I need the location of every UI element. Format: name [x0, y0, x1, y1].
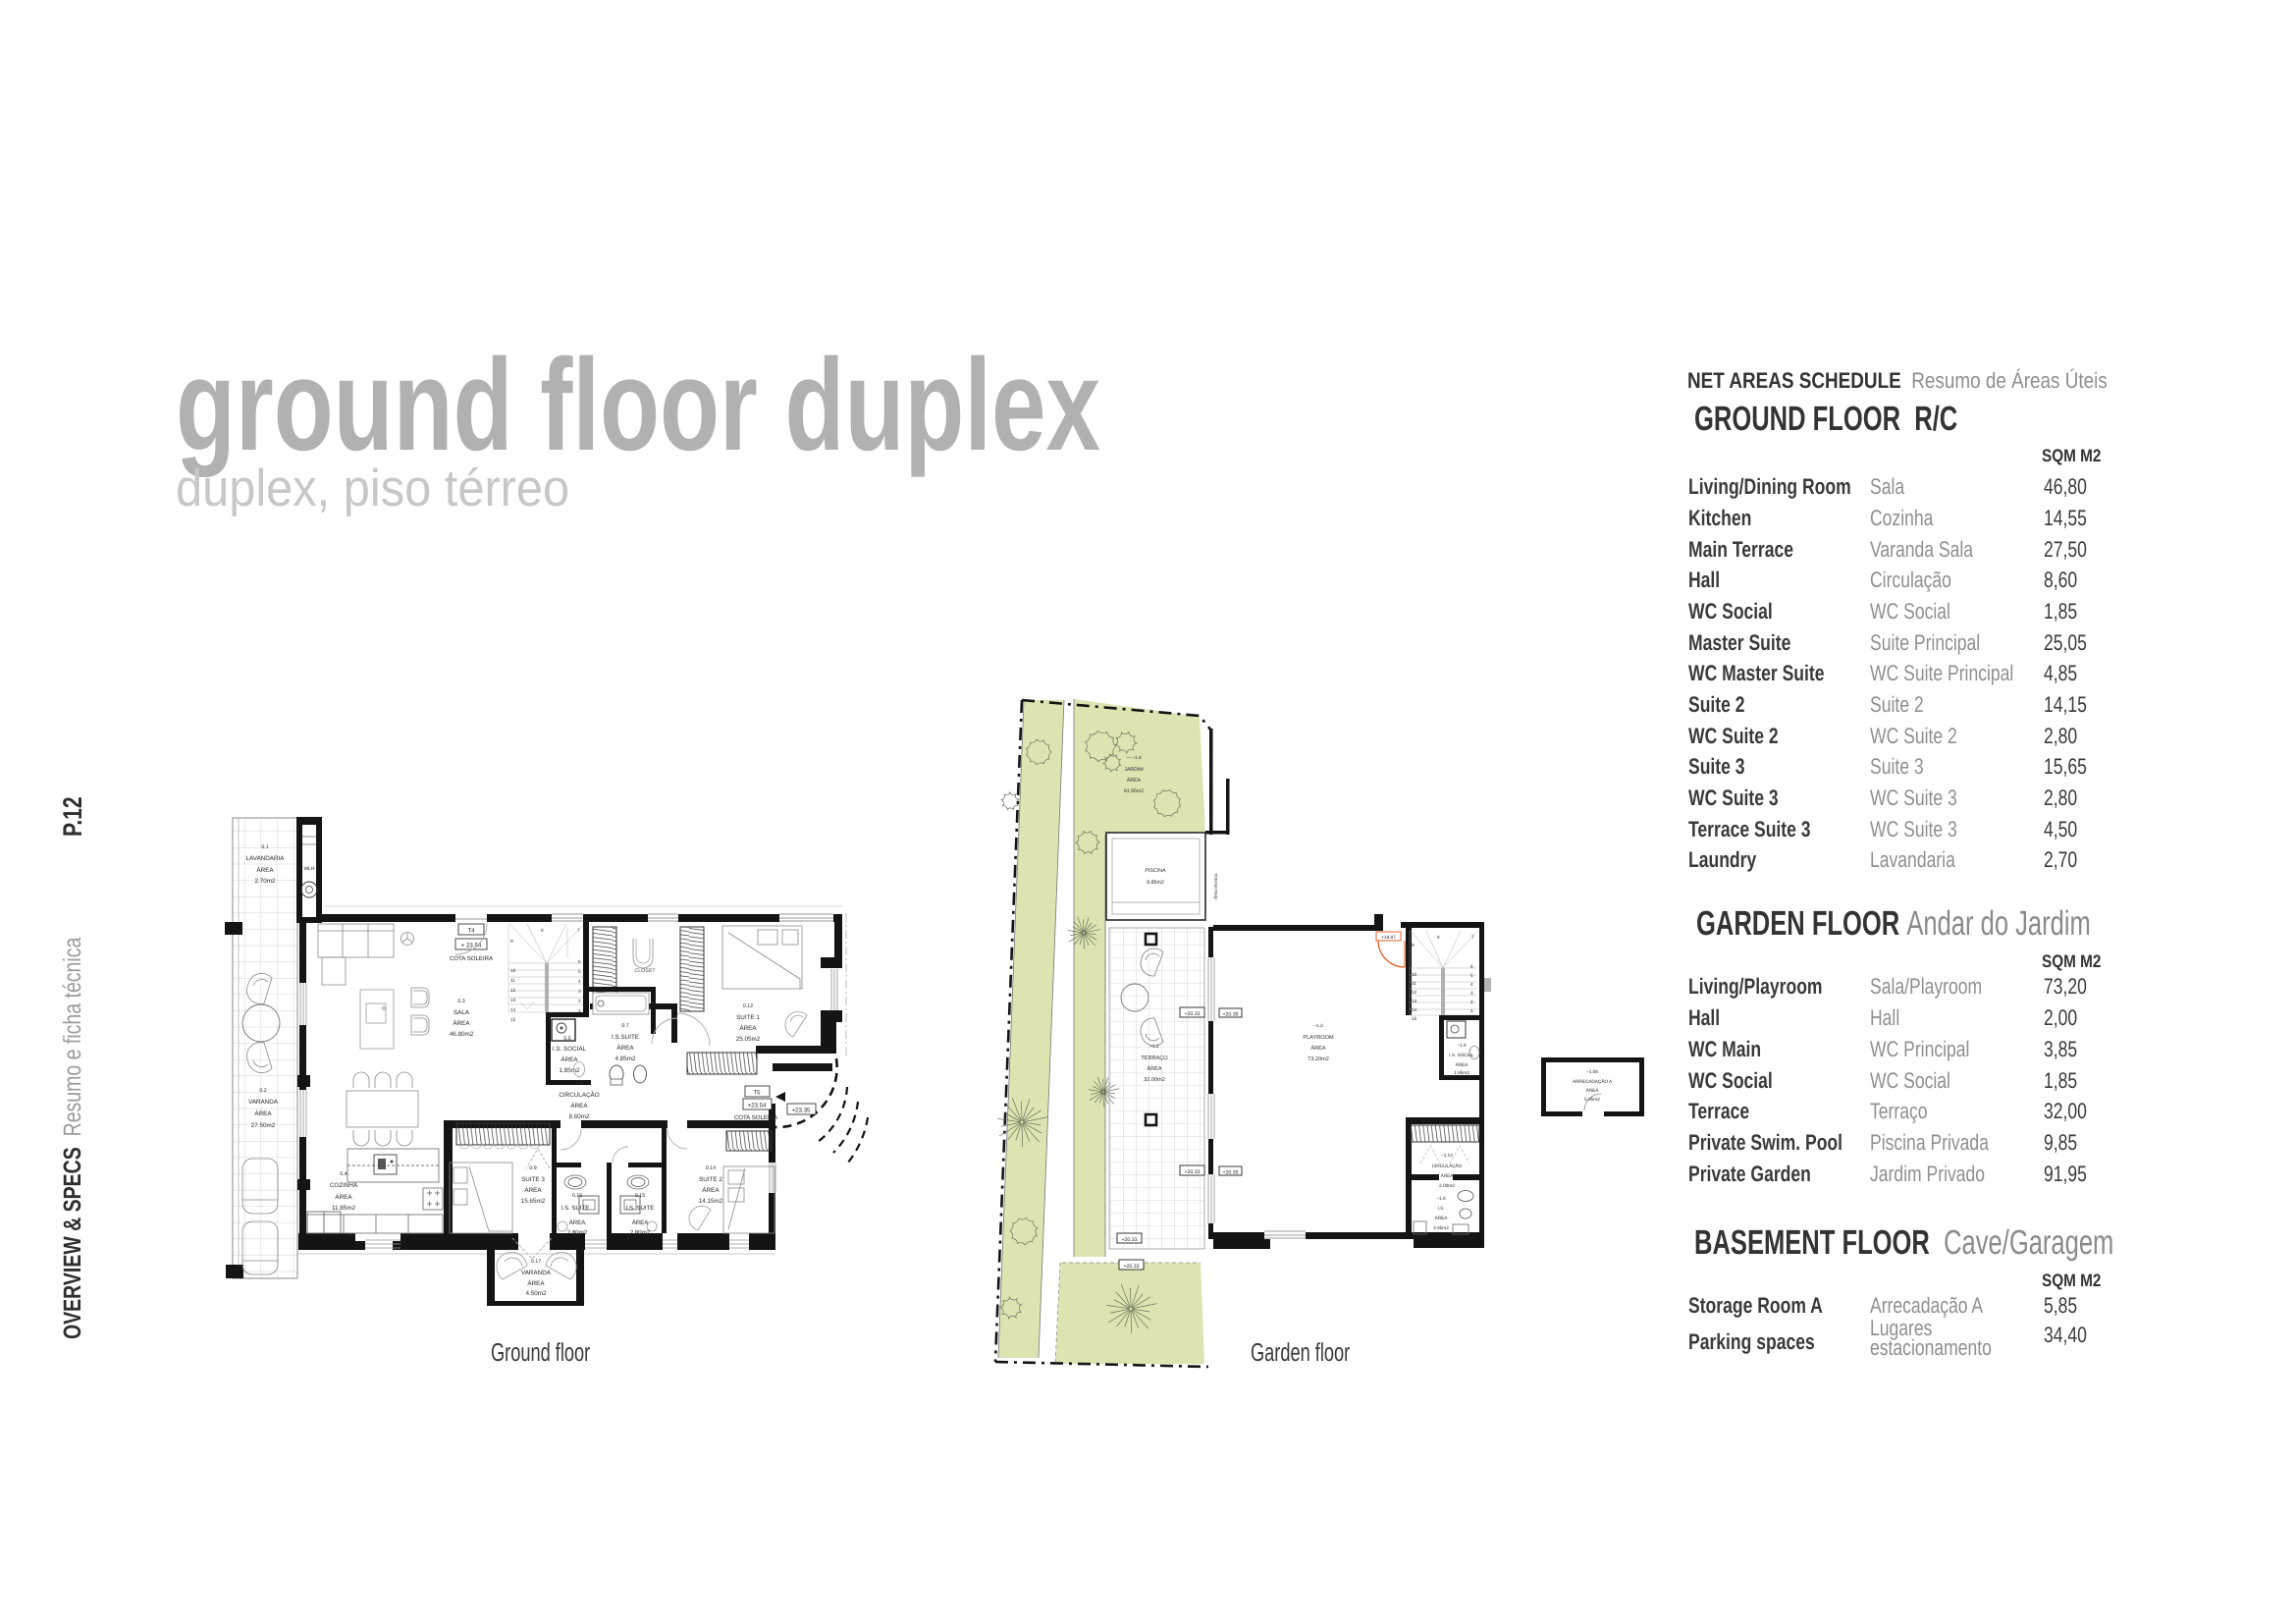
svg-text:T4: T4 — [467, 928, 475, 935]
svg-text:10: 10 — [1412, 972, 1417, 977]
svg-text:11: 11 — [1412, 981, 1416, 986]
svg-text:COTA SOLEIRA: COTA SOLEIRA — [450, 955, 494, 962]
svg-text:VARANDA: VARANDA — [521, 1270, 552, 1276]
svg-text:+20.33: +20.33 — [1184, 1169, 1200, 1175]
svg-text:PLAYROOM: PLAYROOM — [1303, 1035, 1334, 1041]
svg-text:0.4: 0.4 — [340, 1171, 347, 1177]
svg-text:0.9: 0.9 — [529, 1165, 536, 1171]
svg-text:13: 13 — [1412, 999, 1417, 1003]
svg-text:ÁREA: ÁREA — [1310, 1045, 1326, 1052]
svg-text:I.S. SOCIAL: I.S. SOCIAL — [553, 1046, 587, 1053]
svg-text:ÁREA: ÁREA — [256, 866, 274, 874]
svg-text:–1.6: –1.6 — [1457, 1043, 1467, 1048]
svg-text:4: 4 — [1470, 982, 1473, 987]
svg-text:10: 10 — [510, 968, 516, 973]
svg-text:+18.87: +18.87 — [1381, 935, 1396, 940]
svg-text:COTA SOLEIRA: COTA SOLEIRA — [734, 1114, 778, 1121]
svg-text:ÁREA: ÁREA — [739, 1024, 757, 1032]
svg-text:VARANDA: VARANDA — [248, 1099, 279, 1106]
svg-text:TERRAÇO: TERRAÇO — [1141, 1056, 1168, 1061]
svg-text:2: 2 — [578, 999, 581, 1003]
svg-text:I.S. SUITE: I.S. SUITE — [561, 1205, 590, 1212]
svg-text:27.50m2: 27.50m2 — [251, 1122, 276, 1129]
svg-text:PISCINA: PISCINA — [1145, 868, 1166, 874]
svg-text:2.00m2: 2.00m2 — [1439, 1183, 1455, 1188]
svg-text:15: 15 — [510, 1017, 516, 1022]
svg-text:ÁREA: ÁREA — [453, 1019, 470, 1027]
svg-text:ÁREA: ÁREA — [616, 1044, 634, 1052]
svg-text:0.14: 0.14 — [706, 1165, 716, 1171]
svg-text:ÁREA: ÁREA — [632, 1218, 650, 1226]
svg-text:1.85m2: 1.85m2 — [1454, 1070, 1469, 1075]
svg-text:+20.35: +20.35 — [1222, 1011, 1238, 1017]
svg-text:13: 13 — [510, 998, 516, 1002]
svg-text:0.2: 0.2 — [259, 1088, 266, 1094]
svg-text:+20.33: +20.33 — [1121, 1237, 1137, 1243]
svg-text:ÁREA: ÁREA — [569, 1218, 587, 1226]
svg-text:73.20m2: 73.20m2 — [1308, 1056, 1329, 1062]
svg-text:32.00m2: 32.00m2 — [1144, 1077, 1165, 1083]
svg-text:2.80m2: 2.80m2 — [630, 1229, 651, 1236]
svg-text:8: 8 — [1437, 935, 1440, 940]
svg-text:2.70m2: 2.70m2 — [254, 878, 276, 885]
svg-text:15: 15 — [1412, 1016, 1417, 1021]
svg-text:ARRECADAÇÃO A: ARRECADAÇÃO A — [1573, 1078, 1613, 1084]
svg-text:ÁREA: ÁREA — [1586, 1087, 1600, 1093]
svg-text:5: 5 — [578, 969, 581, 974]
svg-text:8.60m2: 8.60m2 — [568, 1113, 590, 1120]
svg-text:14: 14 — [1412, 1007, 1417, 1012]
svg-text:Área técnica: Área técnica — [1212, 874, 1218, 899]
svg-text:0.1: 0.1 — [261, 844, 268, 850]
svg-text:SUITE 3: SUITE 3 — [521, 1176, 545, 1183]
svg-text:1: 1 — [1470, 1008, 1473, 1013]
svg-text:ÁREA: ÁREA — [570, 1102, 588, 1110]
svg-text:+ 23.54: + 23.54 — [461, 943, 482, 949]
svg-text:3: 3 — [578, 989, 581, 994]
svg-text:25.05m2: 25.05m2 — [736, 1036, 761, 1043]
svg-text:12: 12 — [1412, 990, 1417, 995]
svg-text:JARDIM: JARDIM — [1124, 767, 1143, 773]
svg-text:SUITE 1: SUITE 1 — [736, 1014, 760, 1021]
svg-text:CLOSET: CLOSET — [634, 968, 656, 974]
svg-text:4.50m2: 4.50m2 — [525, 1290, 547, 1297]
svg-text:— –1.8: — –1.8 — [1126, 755, 1142, 760]
svg-text:ÁREA: ÁREA — [1127, 777, 1142, 784]
svg-text:4.85m2: 4.85m2 — [614, 1056, 636, 1062]
svg-text:CÍRCULAÇÃO: CÍRCULAÇÃO — [1432, 1163, 1463, 1168]
svg-text:+20.33: +20.33 — [1123, 1264, 1139, 1270]
svg-text:ÁREA: ÁREA — [561, 1056, 578, 1063]
svg-text:LAVANDARIA: LAVANDARIA — [246, 855, 286, 862]
svg-text:4: 4 — [578, 979, 581, 984]
svg-text:–1.8: –1.8 — [1436, 1196, 1446, 1201]
svg-text:7: 7 — [1471, 935, 1474, 940]
svg-text:6: 6 — [1470, 964, 1473, 969]
svg-text:I.S.SUITE: I.S.SUITE — [612, 1034, 639, 1041]
svg-text:0.17: 0.17 — [531, 1259, 541, 1265]
svg-text:0.15: 0.15 — [635, 1193, 645, 1199]
svg-text:1.85m2: 1.85m2 — [559, 1067, 580, 1074]
svg-text:ÁREA: ÁREA — [254, 1110, 272, 1117]
svg-text:ÁREA: ÁREA — [527, 1279, 545, 1287]
svg-text:CIRCULAÇÃO: CIRCULAÇÃO — [559, 1091, 599, 1099]
svg-text:0.5: 0.5 — [563, 1036, 570, 1042]
svg-text:ÁREA: ÁREA — [702, 1186, 720, 1194]
svg-text:9,85m2: 9,85m2 — [1147, 880, 1164, 886]
svg-text:–1.08: –1.08 — [1586, 1069, 1598, 1074]
svg-text:+20.35: +20.35 — [1222, 1169, 1238, 1175]
svg-text:6: 6 — [578, 959, 581, 964]
svg-text:46.80m2: 46.80m2 — [450, 1031, 474, 1038]
svg-text:3: 3 — [1470, 991, 1473, 996]
svg-text:14.15m2: 14.15m2 — [699, 1198, 723, 1205]
svg-text:ÁREA: ÁREA — [335, 1193, 352, 1201]
svg-text:WLR: WLR — [303, 866, 315, 872]
svg-text:SALA: SALA — [454, 1009, 470, 1016]
svg-text:0.16: 0.16 — [572, 1193, 582, 1199]
svg-text:5.85m2: 5.85m2 — [1584, 1097, 1600, 1102]
svg-text:5: 5 — [1470, 973, 1473, 978]
svg-text:2: 2 — [1470, 1000, 1473, 1004]
svg-text:+20.33: +20.33 — [1184, 1011, 1200, 1017]
svg-text:11: 11 — [510, 978, 515, 983]
svg-text:0.12: 0.12 — [743, 1003, 753, 1009]
svg-text:T5: T5 — [753, 1090, 761, 1097]
svg-text:I.S. SUITE: I.S. SUITE — [626, 1205, 655, 1212]
svg-text:–1.2: –1.2 — [1149, 1044, 1159, 1049]
svg-text:+23.35: +23.35 — [792, 1108, 811, 1114]
svg-text:9: 9 — [510, 939, 513, 944]
svg-text:91.95m2: 91.95m2 — [1124, 788, 1144, 794]
svg-text:ÁREA: ÁREA — [1147, 1065, 1162, 1072]
svg-text:ÁREA: ÁREA — [524, 1186, 542, 1194]
svg-text:ÁREA: ÁREA — [1441, 1172, 1455, 1178]
svg-text:12: 12 — [510, 988, 516, 993]
svg-text:2.80m2: 2.80m2 — [567, 1229, 588, 1236]
svg-text:14: 14 — [510, 1007, 516, 1012]
svg-text:+23.54: +23.54 — [748, 1103, 767, 1110]
svg-text:ÁREA: ÁREA — [1435, 1215, 1449, 1220]
svg-text:11.85m2: 11.85m2 — [332, 1205, 356, 1212]
svg-text:ÁREA: ÁREA — [1456, 1061, 1469, 1067]
svg-text:15.65m2: 15.65m2 — [521, 1198, 546, 1205]
svg-text:0.3: 0.3 — [457, 999, 464, 1004]
svg-text:8: 8 — [541, 928, 544, 933]
svg-text:COZINHA: COZINHA — [330, 1182, 358, 1189]
svg-text:0.7: 0.7 — [621, 1023, 628, 1029]
svg-text:3.85m2: 3.85m2 — [1433, 1225, 1449, 1230]
svg-text:9: 9 — [1412, 943, 1415, 947]
svg-text:I.S.: I.S. — [1437, 1206, 1444, 1211]
svg-text:SUITE 2: SUITE 2 — [699, 1176, 722, 1183]
svg-text:7: 7 — [577, 928, 580, 933]
svg-text:–1.13: –1.13 — [1441, 1153, 1453, 1158]
svg-text:–1.3: –1.3 — [1313, 1023, 1323, 1028]
svg-text:0.8: 0.8 — [575, 1080, 582, 1086]
